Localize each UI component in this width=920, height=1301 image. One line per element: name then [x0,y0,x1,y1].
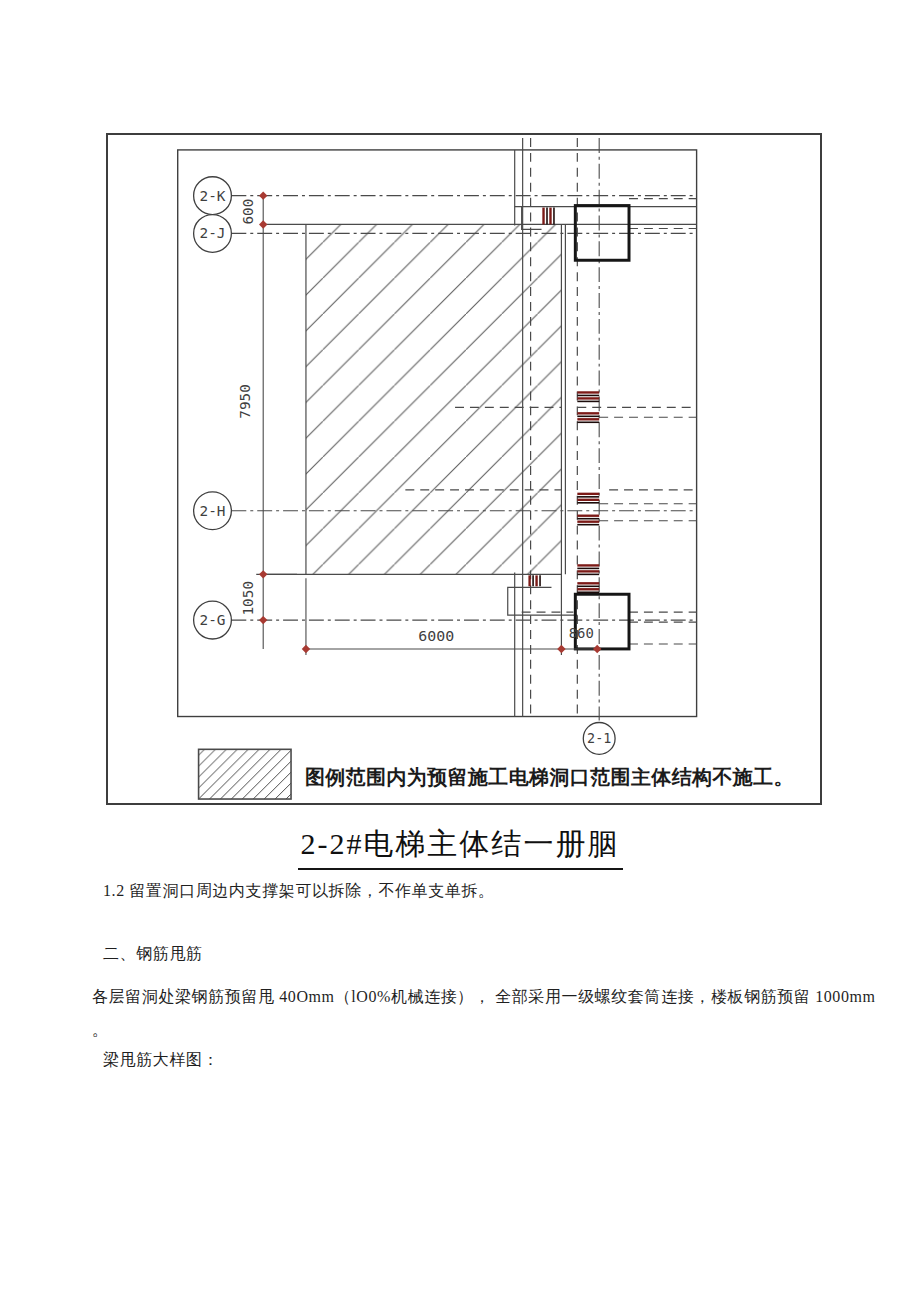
legend: 图例范围内为预留施工电梯洞口范围主体结构不施工。 [199,749,794,799]
rebar-wall-clusters [577,392,599,592]
section-body-line: 各层留洞处梁钢筋预留甩 40Omm（lO0%机械连接）， 全部采用一级螺纹套筒连… [92,987,876,1008]
grid-bubble-2-1: 2-1 [583,722,615,754]
grid-bubble-2g: 2-G [194,601,232,639]
grid-bubble-2j-label: 2-J [199,225,225,241]
legend-hatch-swatch [199,749,291,799]
grid-bubble-2h-label: 2-H [199,503,225,519]
grid-bubble-2h: 2-H [194,492,232,530]
note-item-1-2: 1.2 留置洞口周边内支撑架可以拆除，不作单支单拆。 [103,881,495,902]
dim-6000: 6000 [418,627,454,645]
legend-text: 图例范围内为预留施工电梯洞口范围主体结构不施工。 [305,766,794,788]
grid-bubble-2j: 2-J [194,215,232,253]
dim-860: 860 [569,625,594,641]
dim-600: 600 [240,199,256,225]
drawing-figure: 600 7950 1050 6000 860 2-K 2-J 2-H 2-G 2… [106,133,822,805]
title-row: 2-2#电梯主体结一册胭 [0,824,920,870]
grid-bubble-2-1-label: 2-1 [587,731,611,746]
grid-bubble-2g-label: 2-G [199,612,225,628]
detail-caption: 梁甩筋大样图： [103,1050,219,1071]
section-body-period: 。 [92,1020,109,1041]
drawing-title: 2-2#电梯主体结一册胭 [298,824,623,870]
grid-bubble-2k: 2-K [194,177,232,215]
grid-bubble-2k-label: 2-K [199,188,225,204]
dim-1050: 1050 [240,581,256,616]
dim-7950: 7950 [237,384,253,419]
elevator-shaft-plan-svg: 600 7950 1050 6000 860 2-K 2-J 2-H 2-G 2… [108,135,820,803]
rebar-top-notch [544,208,554,225]
document-page: { "diagram": { "bubbles": { "k": "2-K", … [0,0,920,1301]
section-heading: 二、钢筋甩筋 [103,944,203,965]
